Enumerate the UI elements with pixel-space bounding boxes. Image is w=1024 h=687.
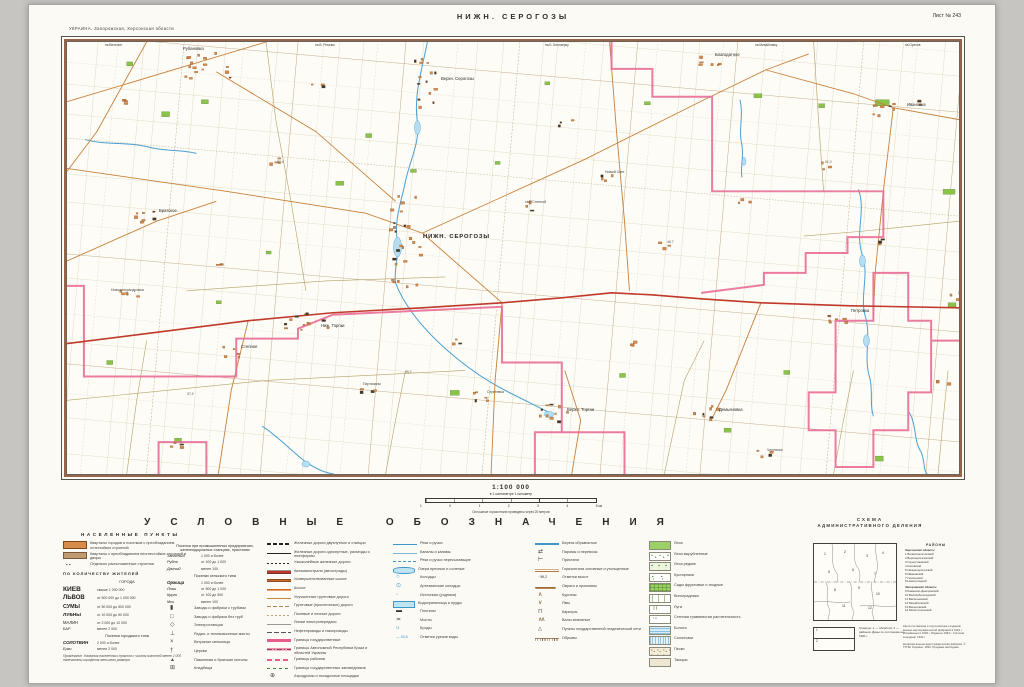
legend-label: Болота — [674, 626, 761, 631]
vegetation-patches — [107, 62, 959, 461]
legend-row: Нефтепроводы и газопроводы — [267, 629, 379, 636]
legend-symbol — [167, 658, 191, 665]
legend-row: Заводы и фабрики с трубами — [167, 606, 263, 613]
settlement-size-range: 1 000 и более — [201, 554, 263, 558]
scale-ratio: 1:100 000 — [291, 484, 731, 491]
legend-label: Кустарники — [674, 573, 761, 578]
legend-row: Усовершенствованные шоссе — [267, 577, 379, 584]
legend-label: Леса — [674, 541, 761, 546]
sheet-title: НИЖН. СЕРОГОЗЫ — [61, 12, 965, 21]
legend-symbol — [167, 615, 191, 622]
legend-label: Овраги и промоины — [562, 584, 643, 589]
legend-row: Кустарники — [649, 573, 761, 582]
imprint-paragraph-2: Киевская военно-картографическая фабрика… — [903, 643, 967, 650]
legend-row: Памятники и братские могилы — [167, 658, 263, 665]
district-number: 1 — [824, 552, 826, 556]
legend-symbol — [535, 601, 559, 608]
settlement-size-row: Мхи менее 100 — [167, 600, 263, 605]
legend-symbol — [393, 609, 417, 616]
legend-rural-header: Поселки сельского типа — [167, 574, 263, 579]
settlement-sample-name: СУМЫ — [63, 604, 97, 610]
legend-row: Солончаки — [649, 636, 761, 645]
map-inner-frame: НИЖН. СЕРОГОЗЫРубановкаВерхн. СерогозыНи… — [64, 39, 962, 477]
legend-symbol — [167, 666, 191, 673]
map-canvas: НИЖН. СЕРОГОЗЫРубановкаВерхн. СерогозыНи… — [66, 41, 960, 475]
legend-area-symbol — [649, 583, 671, 592]
legend-symbol — [393, 550, 417, 557]
legend-label: Грунтовые (проселочные) дороги — [294, 603, 379, 608]
legend-area-symbol — [649, 594, 671, 603]
admin-districts: РАЙОНЫ Херсонская область: 1 Великолепет… — [905, 543, 967, 613]
legend-label: Леса редкие — [674, 562, 761, 567]
imprint: Карта составлена и подготовлена к издани… — [903, 625, 967, 653]
legend-label: Отметки урезов воды — [420, 635, 505, 640]
legend-row: Пункты государственной геодезической сет… — [535, 627, 643, 634]
legend-row: Берега обрывистые — [535, 541, 643, 548]
legend-row: Артезианские колодцы — [393, 584, 505, 591]
legend-symbol — [267, 666, 291, 673]
legend-label: Заводы и фабрики с трубами — [194, 606, 263, 611]
legend-symbol — [267, 638, 291, 645]
legend-row: Линии электропередачи — [267, 620, 379, 627]
legend-label: Валы земляные — [562, 618, 643, 623]
legend-row: Реки и ручьи пересыхающие — [393, 558, 505, 565]
legend-row: Ямы — [535, 601, 643, 608]
scale-bar-label: 5 км — [596, 504, 602, 508]
legend-row: Каналы и канавы — [393, 550, 505, 557]
settlement-sample-name: ЛУБНЫ — [63, 613, 97, 619]
legend-settlements-header: НАСЕЛЕННЫЕ ПУНКТЫ — [81, 532, 180, 537]
legend-symbol — [267, 620, 291, 627]
legend-row: Мосты — [393, 618, 505, 625]
legend-column-relief: Берега обрывистые Паромы и перевозы Прис… — [535, 541, 643, 644]
legend-row: Границы Автономной Республики Крым и обл… — [267, 646, 379, 655]
legend-symbol — [167, 649, 191, 656]
legend-column-vegetation: Леса Леса вырубленные Леса редкие Кустар… — [649, 541, 761, 668]
legend-row: Паромы и перевозы — [535, 550, 643, 557]
legend-label: Источники (родники) — [420, 593, 505, 598]
highway — [67, 293, 959, 344]
legend-area-symbol — [649, 573, 671, 582]
topographic-map — [67, 42, 959, 474]
legend-area-symbol — [649, 636, 671, 645]
legend-row: Отметки урезов воды — [393, 635, 505, 642]
legend-label: Каналы и канавы — [420, 550, 505, 555]
legend-symbol — [267, 550, 291, 557]
legend-row: Узкоколейные железные дороги — [267, 560, 379, 567]
settlement-size-range: от 100 до 1 000 — [201, 560, 263, 564]
legend-symbol — [535, 593, 559, 600]
legend-label: Броды — [420, 626, 505, 631]
districts-header: РАЙОНЫ — [905, 543, 967, 548]
legend-label: Ветряные мельницы — [194, 640, 263, 645]
legend-row: Колодцы — [393, 575, 505, 582]
legend-area-symbol — [649, 541, 671, 550]
legend-label: Радио- и телевизионные мачты — [194, 632, 263, 637]
settlement-sample-name: Круги — [167, 593, 201, 598]
legend-label: Виноградники — [674, 594, 761, 599]
legend-label: Берега обрывистые — [562, 541, 643, 546]
admin-scheme: СХЕМА АДМИНИСТРАТИВНОГО ДЕЛЕНИЯ 12345678… — [771, 517, 969, 528]
legend-area-symbol — [649, 658, 671, 667]
legend-symbol — [167, 632, 191, 639]
legend-symbol — [267, 674, 291, 681]
legend-label: Электростанции — [194, 623, 263, 628]
legend-label: Пески — [674, 647, 761, 652]
settlement-size-row: Рудня от 100 до 1 000 — [167, 560, 263, 565]
legend-symbol — [267, 595, 291, 602]
settlement-sample-name: БАР — [63, 627, 97, 632]
legend-symbol — [535, 636, 559, 643]
legend-row: Грунтовые (проселочные) дороги — [267, 603, 379, 610]
settlement-sample-name: Западный — [167, 554, 201, 559]
district-list-item: 14 Мелитопольский — [905, 609, 967, 613]
settlement-size-row: Западный 1 000 и более — [167, 554, 263, 559]
legend-label: Границы районов — [294, 657, 379, 662]
legend-symbol — [63, 562, 87, 569]
legend-column-water: Реки и ручьи Каналы и канавы Реки и ручь… — [393, 541, 505, 644]
legend-label: Обрывы — [562, 636, 643, 641]
legend-symbol — [393, 626, 417, 633]
district-number: 12 — [868, 606, 872, 610]
legend-symbol — [393, 575, 417, 582]
legend-symbol — [267, 569, 291, 576]
district-list-item: 8 Новотроицкий — [905, 580, 967, 584]
legend-label: Горизонтали основные и утолщенные — [562, 567, 643, 572]
legend-row: Леса редкие — [649, 562, 761, 571]
district-number: 8 — [834, 588, 836, 592]
legend-symbol — [267, 560, 291, 567]
legend-column-rural: Поселки при промышленных предприятиях, ж… — [167, 541, 263, 675]
district-number: 4 — [882, 551, 884, 555]
legend-symbol — [393, 558, 417, 565]
legend-row: Сады фруктовые и ягодные — [649, 583, 761, 592]
legend-symbol — [535, 575, 559, 582]
settlement-sample-name: Оржица — [167, 580, 201, 585]
legend-row: Заводы и фабрики без труб — [167, 615, 263, 622]
keybox-cell-2: 2 — [814, 639, 854, 650]
district-number: 2 — [844, 550, 846, 554]
map-sheet: УКРАИНА. Запорожская, Херсонская области… — [28, 4, 996, 684]
scale-bar-label: 0 — [449, 504, 451, 508]
legend-symbol — [267, 646, 291, 653]
legend-symbol — [267, 586, 291, 593]
settlement-size-range: менее 100 — [201, 600, 263, 604]
legend-label: Такыры — [674, 658, 761, 663]
legend-title: УСЛОВНЫЕ ОБОЗНАЧЕНИЯ — [69, 517, 759, 528]
legend-label: Карьеры — [562, 610, 643, 615]
legend-label: Курганы — [562, 593, 643, 598]
legend-row: Источники (родники) — [393, 593, 505, 600]
legend-row: Ветряные мельницы — [167, 640, 263, 647]
legend-label: Мосты — [420, 618, 505, 623]
legend-label: Заводы и фабрики без труб — [194, 615, 263, 620]
legend-column-roads: Железные дороги двухпутные и станции Жел… — [267, 541, 379, 683]
legend-label: Шоссе — [294, 586, 379, 591]
legend-row: Луга — [649, 605, 761, 614]
legend-row: Леса вырубленные — [649, 552, 761, 561]
settlement-sample-name: ЛЬВОВ — [63, 595, 97, 602]
district-number: 6 — [852, 568, 854, 572]
legend-label: Луга — [674, 605, 761, 610]
legend-symbol — [63, 541, 87, 549]
legend-symbol — [535, 627, 559, 634]
settlement-sample-name: Лозы — [167, 587, 201, 592]
legend-label: Железные дороги двухпутные и станции — [294, 541, 379, 546]
legend-row: Овраги и промоины — [535, 584, 643, 591]
legend-row: Границы государственные — [267, 638, 379, 645]
legend-row: Полевые и лесные дороги — [267, 612, 379, 619]
settlement-size-row: Дачный менее 100 — [167, 567, 263, 572]
legend-row: Валы земляные — [535, 618, 643, 625]
settlement-sample-name: Дачный — [167, 567, 201, 572]
legend-symbol — [535, 550, 559, 557]
admin-title-line1: СХЕМА — [771, 517, 969, 522]
legend-label: Степная травянистая растительность — [674, 615, 761, 620]
legend-symbol — [535, 541, 559, 548]
legend-label: Пристани — [562, 558, 643, 563]
legend-symbol — [63, 552, 87, 560]
legend-label: Пункты государственной геодезической сет… — [562, 627, 643, 632]
legend-label: Артезианские колодцы — [420, 584, 505, 589]
legend-label: Солончаки — [674, 636, 761, 641]
sheet-number: Лист № 243 — [933, 13, 961, 19]
admin-boundaries — [67, 42, 959, 474]
settlement-sample-name: Рудня — [167, 560, 201, 565]
legend-row: Озера пресные и соленые — [393, 567, 505, 574]
legend-row: Автомагистрали (автострады) — [267, 569, 379, 576]
legend-row: Радио- и телевизионные мачты — [167, 632, 263, 639]
scale-block: 1:100 000 в 1 сантиметре 1 километр 1012… — [291, 484, 731, 514]
district-number: 11 — [842, 604, 846, 608]
legend-label: Памятники и братские могилы — [194, 658, 263, 663]
legend-symbol — [535, 584, 559, 591]
legend-label: Нефтепроводы и газопроводы — [294, 629, 379, 634]
legend-row: Отметки высот — [535, 575, 643, 582]
legend-label: Отметки высот — [562, 575, 643, 580]
legend-symbol — [267, 577, 291, 584]
legend-label: Ямы — [562, 601, 643, 606]
admin-inset-numbers: 123456789101112 — [814, 544, 896, 620]
legend-label: Реки и ручьи пересыхающие — [420, 558, 505, 563]
legend-symbol — [535, 610, 559, 617]
scale-bar-label: 1 — [479, 504, 481, 508]
legend-label: Автомагистрали (автострады) — [294, 569, 379, 574]
keybox-cell-1: 1 — [814, 628, 854, 639]
settlement-size-row: Лозы от 500 до 1 000 — [167, 587, 263, 592]
legend-label: Водохранилища и пруды — [418, 601, 505, 606]
legend-symbol — [535, 558, 559, 565]
legend-label: Улучшенные грунтовые дороги — [294, 595, 379, 600]
admin-title-line2: АДМИНИСТРАТИВНОГО ДЕЛЕНИЯ — [771, 523, 969, 528]
legend-label: Паромы и перевозы — [562, 550, 643, 555]
legend-symbol — [167, 623, 191, 630]
legend-row: Пески — [649, 647, 761, 656]
legend-symbol — [535, 567, 559, 574]
legend-symbol — [393, 584, 417, 591]
admin-keybox: 1 2 — [813, 627, 855, 651]
scale-bar-label: 4 — [566, 504, 568, 508]
legend-symbol — [393, 635, 417, 642]
settlement-size-range: менее 100 — [201, 567, 263, 571]
legend-label: Озера пресные и соленые — [418, 567, 505, 572]
legend-row: Болота — [649, 626, 761, 635]
legend-label: Кладбища — [194, 666, 263, 671]
district-number: 3 — [866, 554, 868, 558]
legend-area-symbol — [649, 552, 671, 561]
legend-row: Степная травянистая растительность — [649, 615, 761, 624]
legend-symbol — [267, 541, 291, 548]
legend-row: Обрывы — [535, 636, 643, 643]
district-number: 9 — [858, 586, 860, 590]
settlement-size-row: Оржица 1 000 и более — [167, 580, 263, 585]
legend-industry-header: Поселки при промышленных предприятиях, ж… — [167, 544, 263, 553]
legend-row: Водохранилища и пруды — [393, 601, 505, 608]
legend-area-symbol — [649, 647, 671, 656]
legend-label: Границы государственные — [294, 638, 379, 643]
legend-label: Колодцы — [420, 575, 505, 580]
scale-bar-label: 3 — [537, 504, 539, 508]
imprint-paragraph-1: Карта составлена и подготовлена к издани… — [903, 625, 967, 640]
settlement-size-range: от 100 до 500 — [201, 593, 263, 597]
legend-row: Церкви — [167, 649, 263, 656]
main-roads — [67, 42, 959, 474]
legend-row: Броды — [393, 626, 505, 633]
legend-row: Аэродромы и посадочные площадки — [267, 674, 379, 681]
scale-bar-label: 2 — [508, 504, 510, 508]
legend-label: Границы Автономной Республики Крым и обл… — [294, 646, 379, 655]
legend-row: Виноградники — [649, 594, 761, 603]
map-frame: НИЖН. СЕРОГОЗЫРубановкаВерхн. СерогозыНи… — [61, 36, 965, 480]
settlement-sample-name: МАЛИН — [63, 620, 97, 625]
legend-area-symbol — [649, 615, 671, 624]
legend-symbol — [167, 640, 191, 647]
scale-bar-labels: 1012345 км — [420, 504, 602, 508]
legend-row: Кладбища — [167, 666, 263, 673]
legend-label: Узкоколейные железные дороги — [294, 560, 379, 565]
legend-label: Реки и ручьи — [420, 541, 505, 546]
legend-label: Полевые и лесные дороги — [294, 612, 379, 617]
legend-label: Линии электропередачи — [294, 620, 379, 625]
legend-label: Леса вырубленные — [674, 552, 761, 557]
legend-symbol — [393, 618, 417, 625]
settlement-sample-name: Мхи — [167, 600, 201, 605]
legend-area-symbol — [649, 626, 671, 635]
admin-key-caption: Границы: 1 — областей, 2 — районов. Даны… — [859, 627, 905, 639]
region-label: УКРАИНА. Запорожская, Херсонская области — [69, 26, 174, 31]
scale-bar — [425, 498, 597, 503]
legend-row: Леса — [649, 541, 761, 550]
legend-label: Железные дороги однопутные, разъезды и п… — [294, 550, 379, 559]
settlement-size-row: Круги от 100 до 500 — [167, 593, 263, 598]
legend-row: Железные дороги двухпутные и станции — [267, 541, 379, 548]
district-number: 5 — [828, 570, 830, 574]
district-number: 10 — [876, 592, 880, 596]
legend-symbol — [393, 593, 417, 600]
scale-subtitle: в 1 сантиметре 1 километр — [291, 492, 731, 496]
district-number: 7 — [874, 572, 876, 576]
settlement-sample-name: КИЕВ — [63, 586, 97, 594]
legend-row: Такыры — [649, 658, 761, 667]
legend-row: Границы районов — [267, 657, 379, 664]
legend-symbol — [267, 657, 291, 664]
legend-row: Пристани — [535, 558, 643, 565]
settlement-sample-name: Ерки — [63, 647, 97, 652]
legend-symbol — [393, 567, 415, 574]
legend-symbol — [167, 606, 191, 613]
legend-row: Плотины — [393, 609, 505, 616]
legend-symbol — [267, 612, 291, 619]
legend-row: Реки и ручьи — [393, 541, 505, 548]
field-grid — [67, 42, 959, 474]
scale-bar-label: 1 — [420, 504, 422, 508]
legend-area-symbol — [649, 605, 671, 614]
legend-row: Железные дороги однопутные, разъезды и п… — [267, 550, 379, 559]
legend-row: Шоссе — [267, 586, 379, 593]
admin-inset-map: 123456789101112 — [813, 543, 897, 621]
legend-symbol — [393, 601, 415, 608]
legend-symbol — [267, 603, 291, 610]
legend-label: Границы государственных заповедников — [294, 666, 379, 671]
legend-row: Улучшенные грунтовые дороги — [267, 595, 379, 602]
rivers — [85, 42, 927, 474]
minor-roads — [67, 42, 959, 474]
legend-symbol — [535, 618, 559, 625]
legend-label: Церкви — [194, 649, 263, 654]
legend-label: Плотины — [420, 609, 505, 614]
legend-row: Карьеры — [535, 610, 643, 617]
contour-note: Сплошные горизонтали проведены через 20 … — [291, 510, 731, 514]
settlement-size-range: 1 000 и более — [201, 581, 263, 585]
legend-row: Границы государственных заповедников — [267, 666, 379, 673]
legend-area-symbol — [649, 562, 671, 571]
legend-label: Аэродромы и посадочные площадки — [294, 674, 379, 679]
settlement-sample-name: СОЛОТВИН — [63, 640, 97, 645]
legend-symbol — [267, 629, 291, 636]
legend-row: Электростанции — [167, 623, 263, 630]
legend-row: Горизонтали основные и утолщенные — [535, 567, 643, 574]
legend-row: Курганы — [535, 593, 643, 600]
settlement-size-range: от 500 до 1 000 — [201, 587, 263, 591]
legend-symbol — [393, 541, 417, 548]
legend-label: Сады фруктовые и ягодные — [674, 583, 761, 588]
legend-label: Усовершенствованные шоссе — [294, 577, 379, 582]
